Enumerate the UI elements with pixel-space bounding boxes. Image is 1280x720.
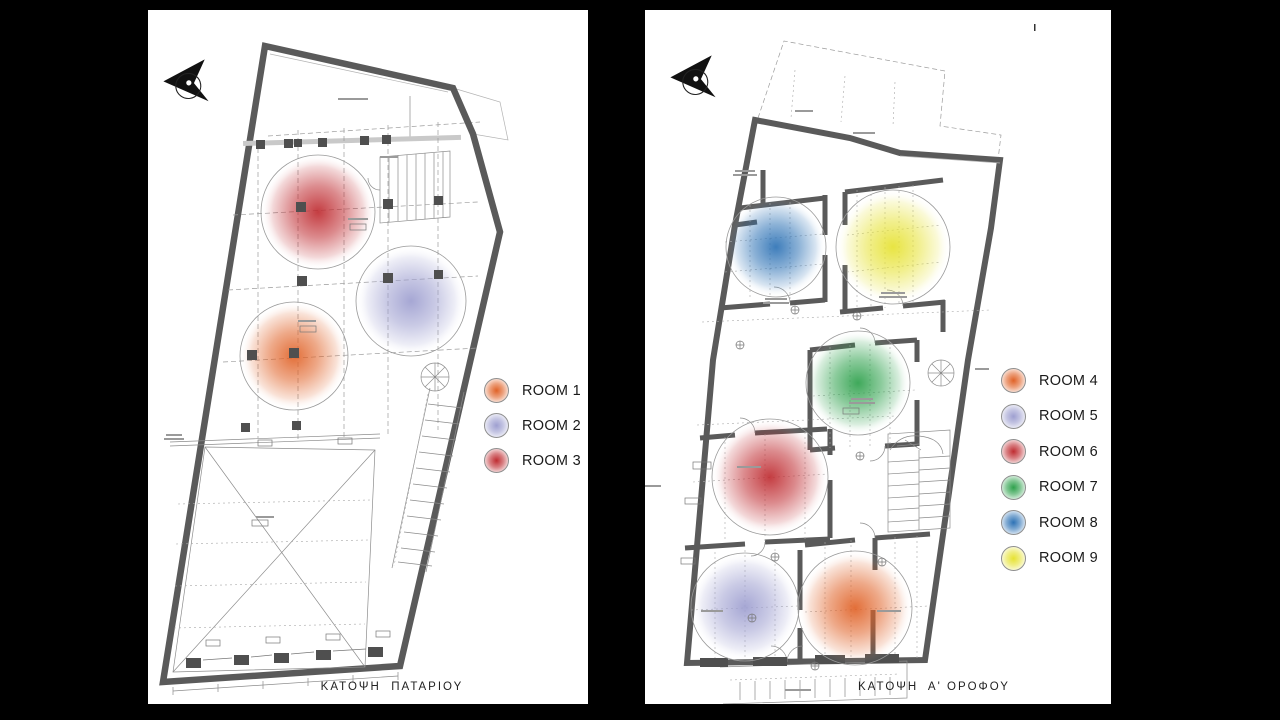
legend-item-room7: ROOM 7 [1001,475,1098,500]
caption-mezzanine: ΚΑΤΟΨΗ ΠΑΤΑΡΙΟΥ [282,681,502,693]
room3-swatch [484,448,509,473]
terrace-grid [791,70,895,126]
terrace-outline [758,41,1001,160]
first-floor-plan-drawing [645,10,1111,704]
annotation [853,132,875,134]
bottom-windows [186,631,390,668]
mezzanine-plan-drawing [148,10,588,704]
legend-item-room8: ROOM 8 [1001,510,1098,535]
floor-plan-first-floor [645,10,1111,704]
north-arrow-icon [668,55,717,103]
plan-line [270,54,448,92]
room4-label: ROOM 4 [1039,373,1098,389]
legend-mezzanine: ROOM 1 ROOM 2 ROOM 3 [484,378,581,473]
tick-mark [1034,24,1036,31]
room9-label: ROOM 9 [1039,550,1098,566]
room7-label: ROOM 7 [1039,479,1098,495]
plan-line [268,122,480,136]
legend-item-room1: ROOM 1 [484,378,581,403]
legend-item-room6: ROOM 6 [1001,439,1098,464]
room2-swatch [484,413,509,438]
heat-circle-room8 [726,197,826,297]
void-open-to-below [170,434,380,672]
room8-label: ROOM 8 [1039,515,1098,531]
room4-swatch [1001,368,1026,393]
room9-swatch [1001,546,1026,571]
beam-wall [243,135,461,146]
legend-item-room5: ROOM 5 [1001,404,1098,429]
room8-swatch [1001,510,1026,535]
legend-item-room3: ROOM 3 [484,448,581,473]
room7-swatch [1001,475,1026,500]
room6-swatch [1001,439,1026,464]
caption-first-floor: ΚΑΤΟΨΗ Α' ΟΡΟΦΟΥ [824,681,1044,693]
legend-item-room9: ROOM 9 [1001,546,1098,571]
heat-circle-room6 [712,419,828,535]
heat-circle-room7 [806,331,910,435]
room5-label: ROOM 5 [1039,408,1098,424]
heat-circle-room5 [691,553,799,661]
room1-swatch [484,378,509,403]
legend-item-room4: ROOM 4 [1001,368,1098,393]
floor-plan-mezzanine [148,10,588,704]
heat-circle-room9 [836,190,950,304]
legend-first-floor: ROOM 4 ROOM 5 ROOM 6 ROOM 7 ROOM 8 ROOM … [1001,368,1098,571]
spiral-stair [421,363,449,391]
room3-label: ROOM 3 [522,453,581,469]
room1-label: ROOM 1 [522,383,581,399]
legend-item-room2: ROOM 2 [484,413,581,438]
heat-circle-room4 [798,551,912,665]
heat-circle-room2 [356,246,466,356]
north-arrow-icon [161,59,210,107]
room6-label: ROOM 6 [1039,444,1098,460]
spiral-stair [928,360,954,386]
room5-swatch [1001,404,1026,429]
screenshot-stage: ROOM 1 ROOM 2 ROOM 3 ROOM 4 ROOM 5 ROOM … [0,0,1280,720]
heat-circle-room3 [261,155,375,269]
room2-label: ROOM 2 [522,418,581,434]
